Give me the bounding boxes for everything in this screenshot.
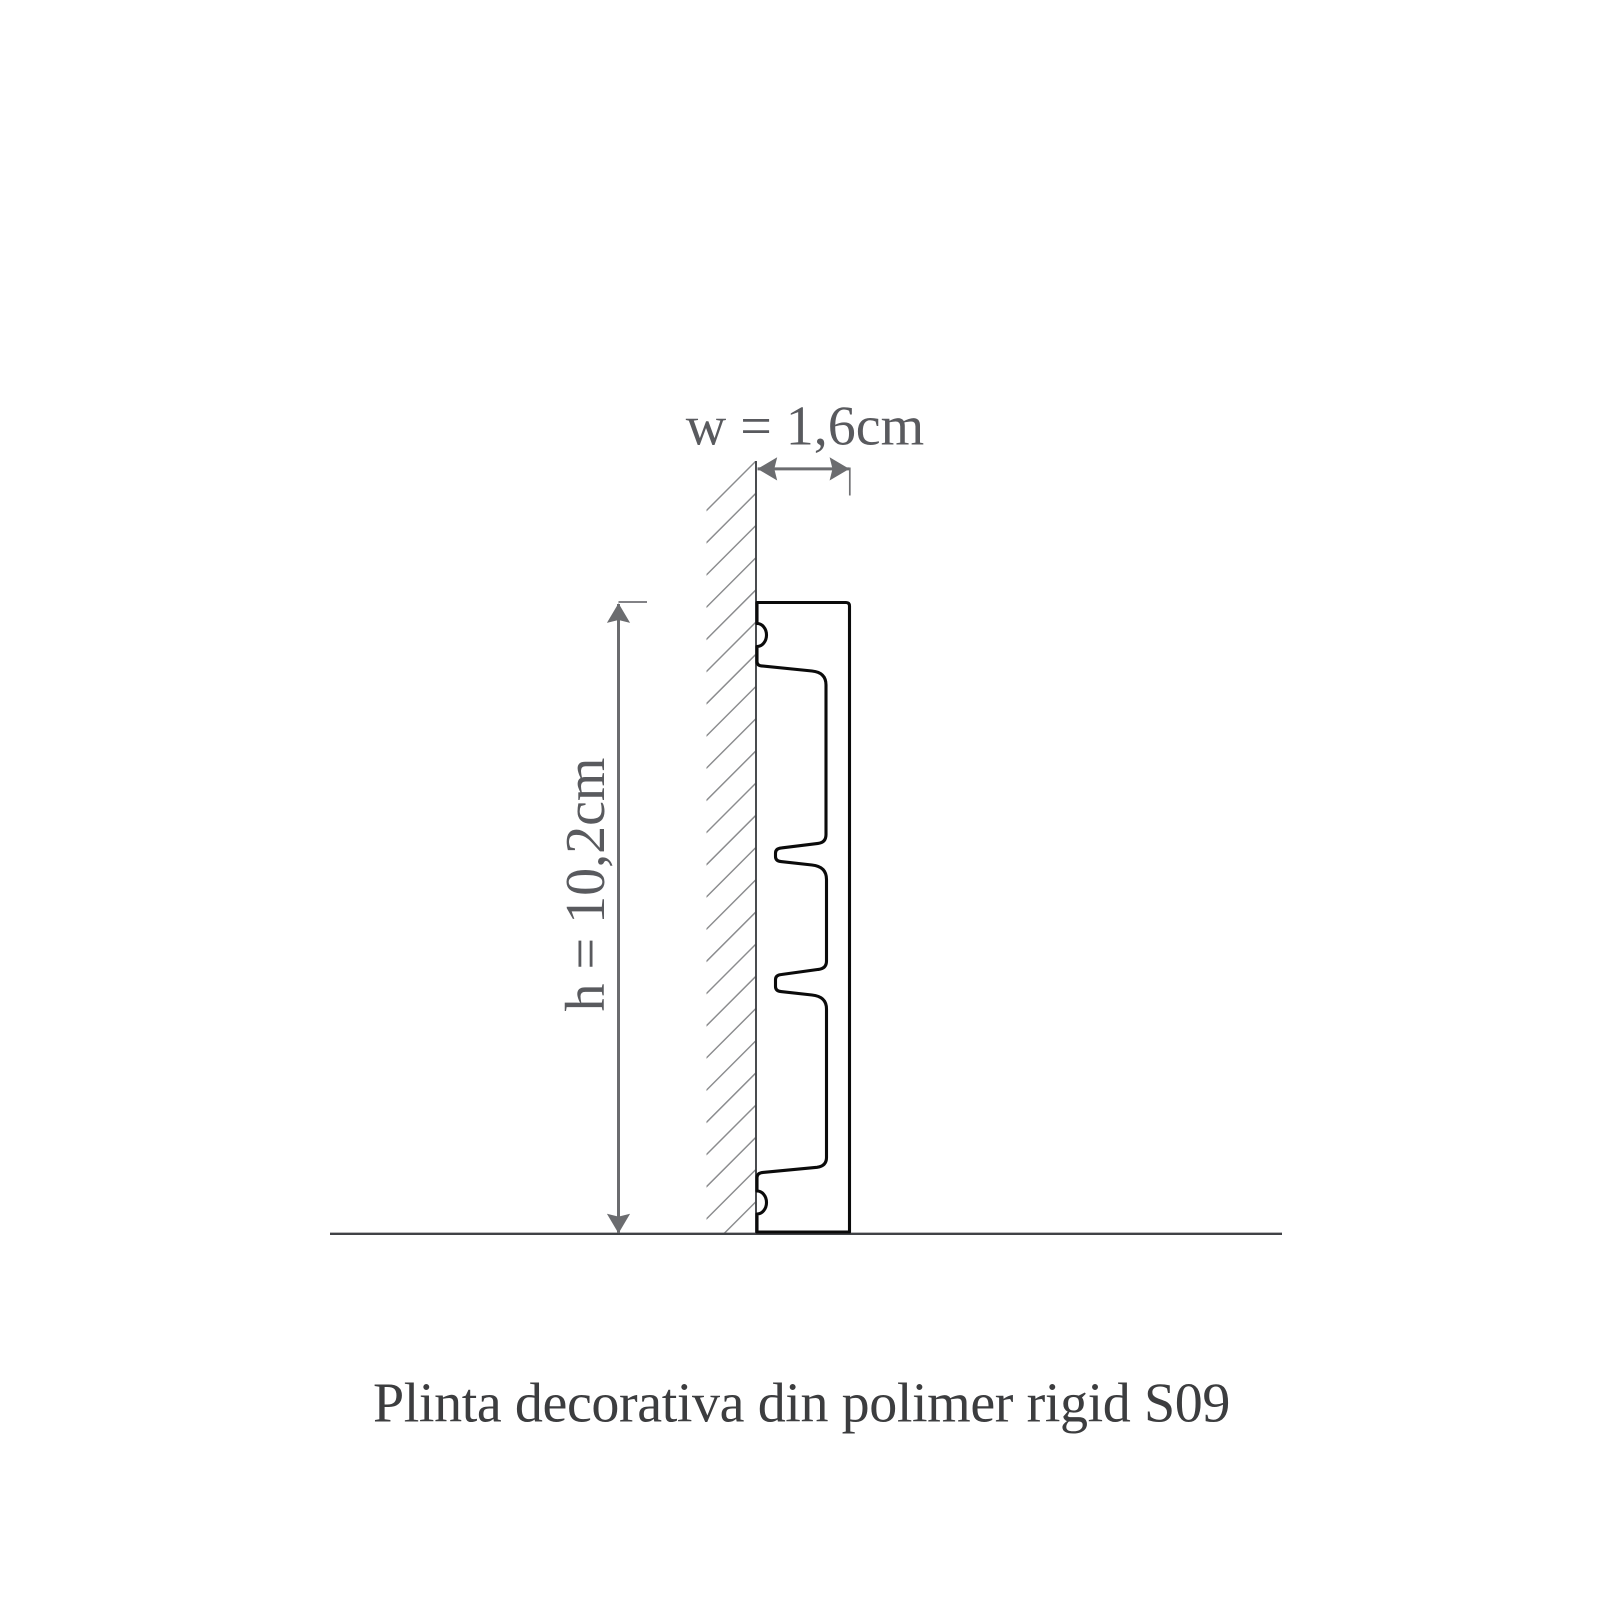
svg-text:Plinta decorativa din polimer: Plinta decorativa din polimer rigid S09 [373,1373,1230,1435]
svg-text:h = 10,2cm: h = 10,2cm [555,758,617,1012]
svg-text:w = 1,6cm: w = 1,6cm [686,396,924,458]
